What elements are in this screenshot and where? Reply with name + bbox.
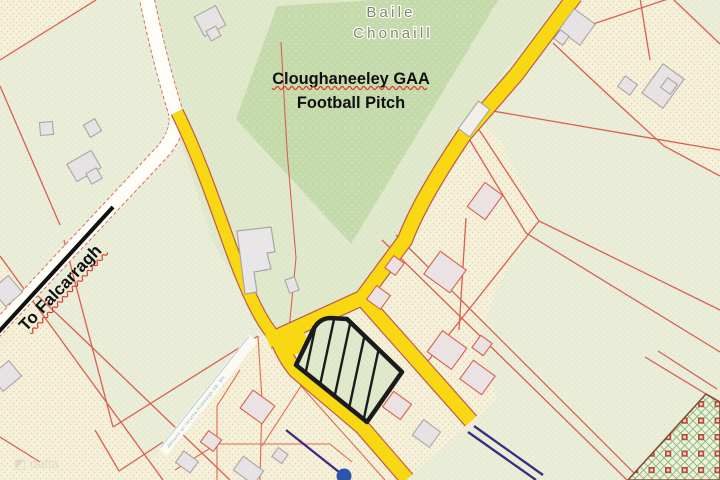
svg-text:Cloughaneeley GAA: Cloughaneeley GAA bbox=[272, 70, 430, 88]
svg-text:Football Pitch: Football Pitch bbox=[297, 94, 405, 112]
svg-text:Baile: Baile bbox=[366, 4, 415, 21]
svg-text:◩ dafta: ◩ dafta bbox=[14, 456, 60, 471]
svg-text:Chonaill: Chonaill bbox=[353, 25, 433, 42]
